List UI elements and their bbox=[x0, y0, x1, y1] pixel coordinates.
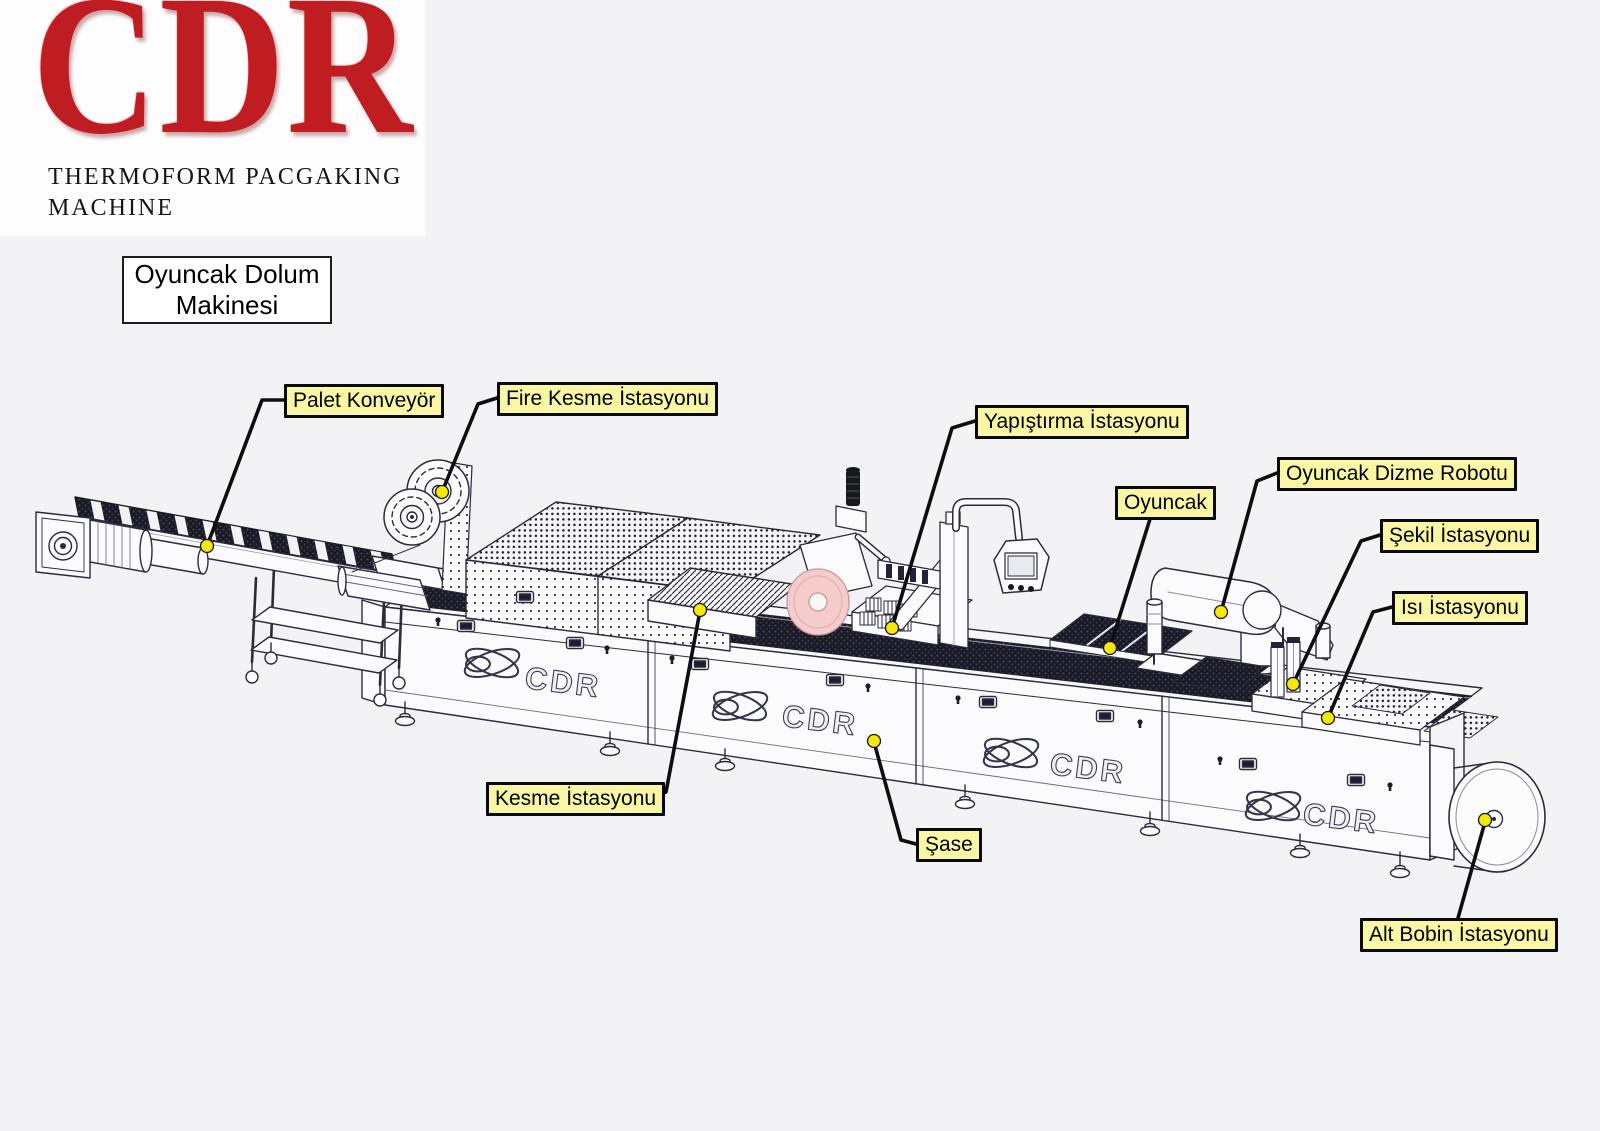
scrap-reel bbox=[384, 489, 440, 545]
leader-line-sekil-istasyonu bbox=[1293, 535, 1380, 684]
diagram-canvas: CDR CDR CDR CDR bbox=[0, 0, 1600, 1131]
marker-sekil-istasyonu bbox=[1287, 678, 1300, 691]
machine-title-line1: Oyuncak Dolum bbox=[135, 259, 320, 289]
marker-yapistirma-istasyonu bbox=[886, 622, 899, 635]
machine-title-box: Oyuncak Dolum Makinesi bbox=[122, 256, 332, 324]
top-film-roll bbox=[787, 569, 849, 635]
marker-fire-kesme-istasyonu bbox=[436, 486, 449, 499]
logo-block: CDR THERMOFORM PACGAKING MACHINE bbox=[0, 0, 425, 236]
bottom-film-bobbin bbox=[1449, 762, 1545, 872]
marker-isi-istasyonu bbox=[1322, 712, 1335, 725]
marker-oyuncak-dizme-robotu bbox=[1215, 606, 1228, 619]
marker-oyuncak bbox=[1104, 642, 1117, 655]
hmi-button bbox=[1008, 584, 1014, 590]
label-kesme-istasyonu: Kesme İstasyonu bbox=[486, 782, 665, 816]
brand-logo: CDR bbox=[32, 0, 414, 166]
label-palet-konveyor: Palet Konveyör bbox=[284, 384, 444, 418]
label-fire-kesme-istasyonu: Fire Kesme İstasyonu bbox=[497, 382, 718, 416]
robot-end-effector bbox=[1147, 599, 1162, 664]
hmi-button bbox=[1018, 585, 1024, 591]
hmi-button bbox=[1028, 586, 1034, 592]
bottom-bobbin-station bbox=[1430, 713, 1545, 872]
logo-subtitle-line1: THERMOFORM PACGAKING bbox=[48, 164, 403, 191]
label-sase: Şase bbox=[916, 828, 982, 862]
label-isi-istasyonu: Isı İstasyonu bbox=[1392, 591, 1528, 625]
machine-title-line2: Makinesi bbox=[176, 290, 279, 320]
sealing-station bbox=[787, 467, 972, 648]
marker-palet-konveyor bbox=[201, 540, 214, 553]
label-alt-bobin-istasyonu: Alt Bobin İstasyonu bbox=[1360, 918, 1558, 952]
marker-alt-bobin-istasyonu bbox=[1479, 814, 1492, 827]
clamp-knob bbox=[836, 467, 866, 532]
marker-kesme-istasyonu bbox=[694, 604, 707, 617]
label-oyuncak: Oyuncak bbox=[1115, 486, 1216, 520]
logo-subtitle-line2: MACHINE bbox=[48, 195, 174, 222]
hmi-panel bbox=[956, 502, 1049, 593]
label-oyuncak-dizme-robotu: Oyuncak Dizme Robotu bbox=[1277, 457, 1517, 491]
label-yapistirma-istasyonu: Yapıştırma İstasyonu bbox=[975, 405, 1189, 439]
label-sekil-istasyonu: Şekil İstasyonu bbox=[1380, 519, 1539, 553]
marker-sase bbox=[868, 735, 881, 748]
